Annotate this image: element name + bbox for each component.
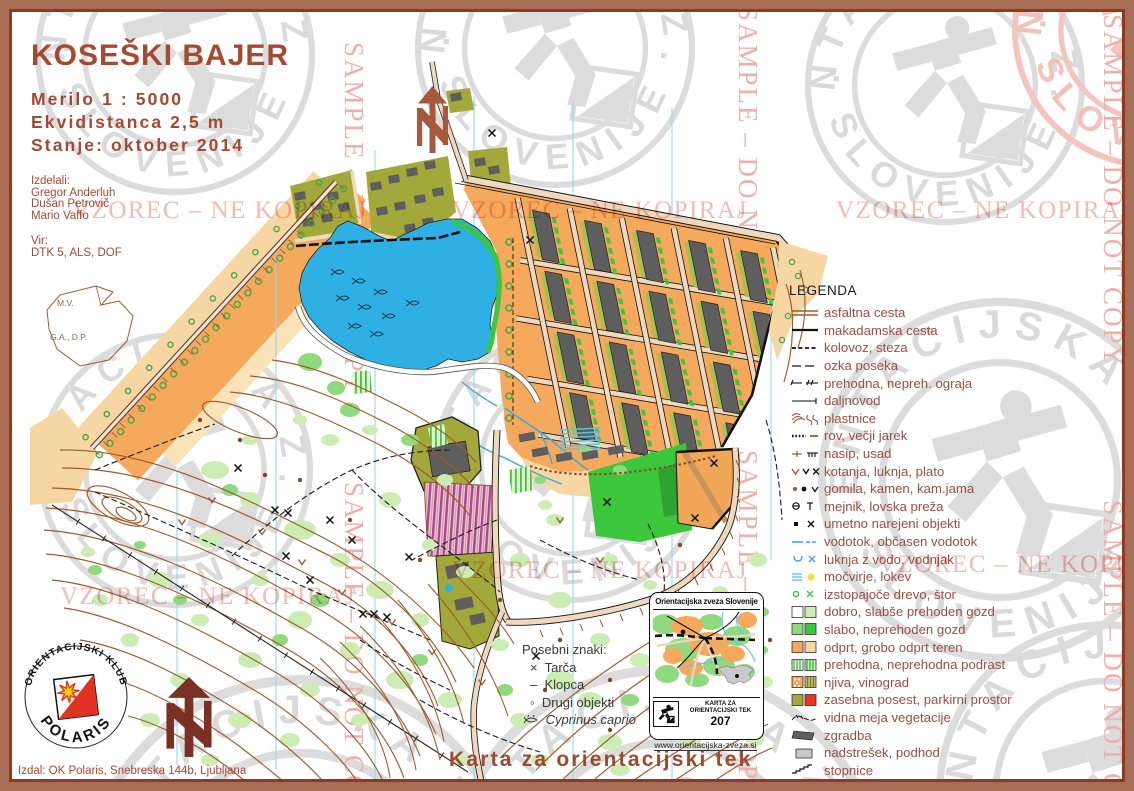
svg-text:M.V.: M.V. [57, 298, 74, 308]
svg-text:G.A., D.P.: G.A., D.P. [50, 332, 87, 342]
